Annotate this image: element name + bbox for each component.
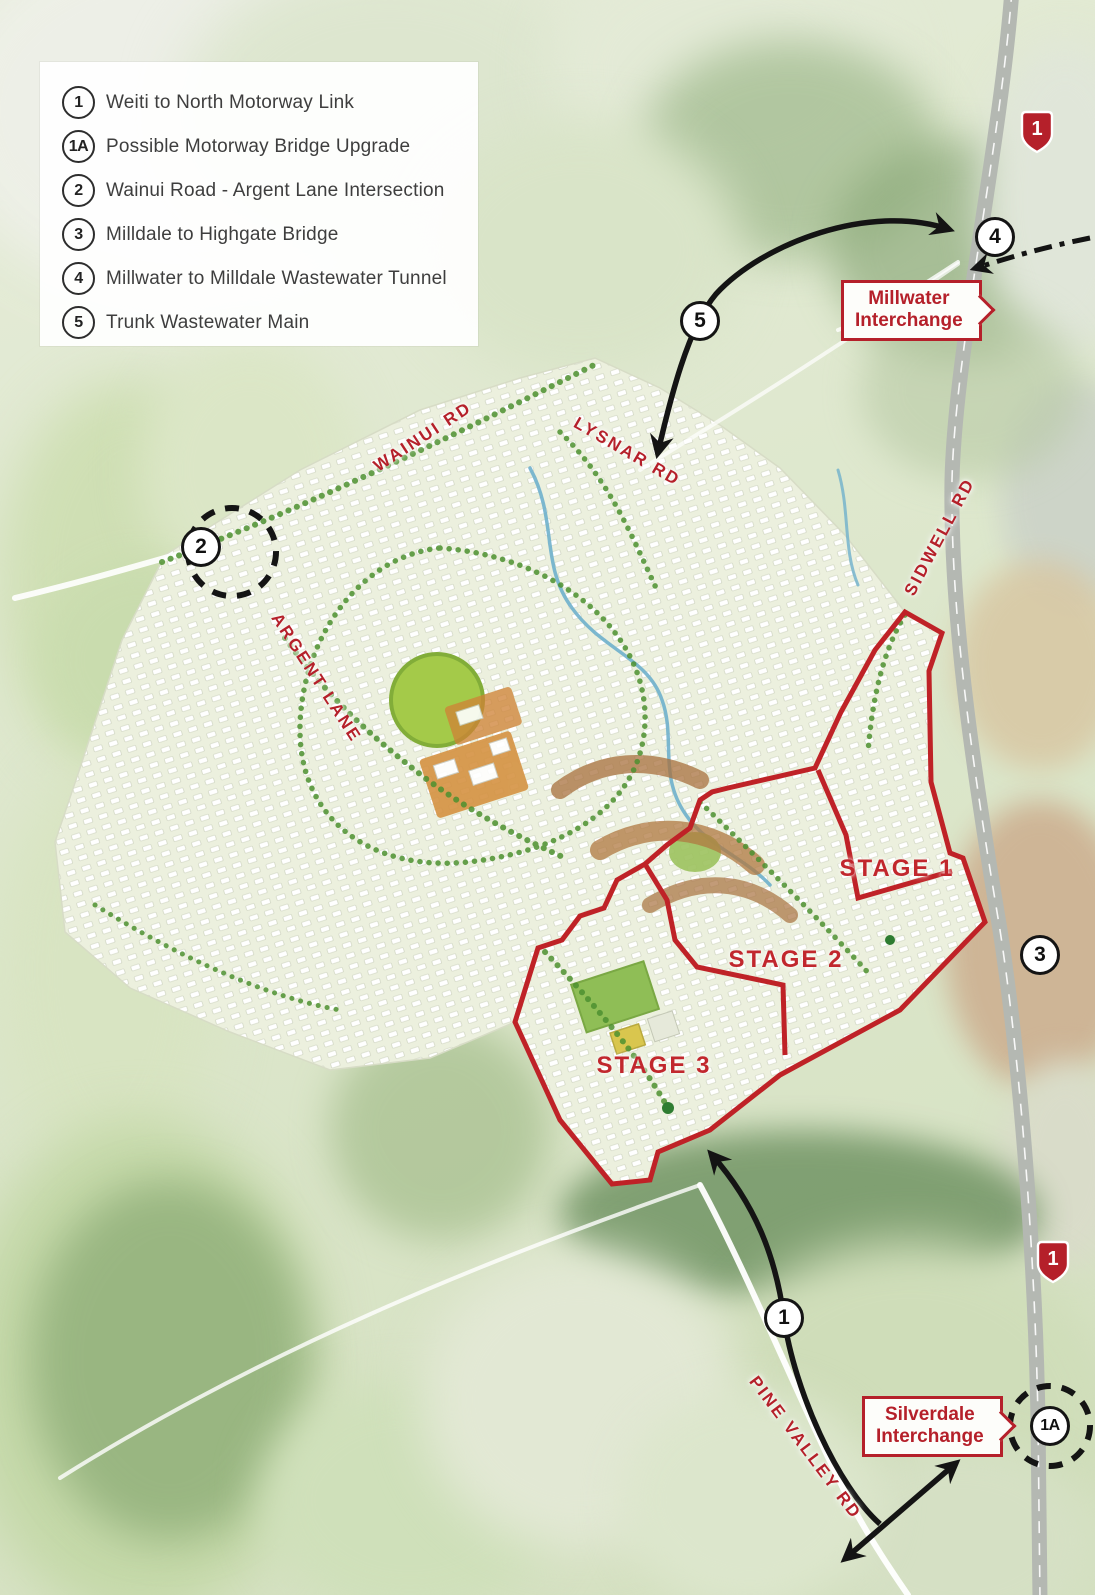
- marker-5: 5: [680, 301, 720, 341]
- legend-item-label: Possible Motorway Bridge Upgrade: [106, 136, 410, 158]
- arrow-weiti-link: [712, 1155, 880, 1524]
- marker-1a: 1A: [1030, 1406, 1070, 1446]
- callout-millwater: Millwater Interchange: [841, 280, 982, 341]
- legend-item-circle: 3: [62, 218, 95, 251]
- legend-item: 4 Millwater to Milldale Wastewater Tunne…: [62, 262, 460, 295]
- marker-3-number: 3: [1034, 943, 1046, 967]
- legend: 1 Weiti to North Motorway Link 1A Possib…: [40, 62, 478, 346]
- stage1-label: STAGE 1: [840, 855, 955, 883]
- legend-item-circle: 1A: [62, 130, 95, 163]
- legend-item-label: Milldale to Highgate Bridge: [106, 224, 338, 246]
- stage2-label: STAGE 2: [729, 946, 844, 974]
- shield-number: 1: [1047, 1248, 1058, 1270]
- legend-item-circle: 5: [62, 306, 95, 339]
- marker-3: 3: [1020, 935, 1060, 975]
- highway-shield-south: 1: [1036, 1240, 1070, 1284]
- legend-list: 1 Weiti to North Motorway Link 1A Possib…: [40, 62, 478, 339]
- marker-1-number: 1: [778, 1306, 790, 1330]
- legend-item-label: Millwater to Milldale Wastewater Tunnel: [106, 268, 447, 290]
- legend-item-circle: 2: [62, 174, 95, 207]
- highway-shield-north: 1: [1020, 110, 1054, 154]
- map-canvas: 2 5 4 3 1 1A WAINUI RD LYSNAR RD SIDWELL…: [0, 0, 1095, 1595]
- legend-item-label: Wainui Road - Argent Lane Intersection: [106, 180, 445, 202]
- callout-silverdale-line1: Silverdale: [876, 1404, 984, 1426]
- legend-item: 2 Wainui Road - Argent Lane Intersection: [62, 174, 460, 207]
- stage3-label: STAGE 3: [597, 1052, 712, 1080]
- legend-item-circle: 4: [62, 262, 95, 295]
- marker-4: 4: [975, 217, 1015, 257]
- marker-2-number: 2: [195, 535, 207, 559]
- legend-item-label: Weiti to North Motorway Link: [106, 92, 354, 114]
- callout-millwater-line1: Millwater: [855, 288, 963, 310]
- legend-item: 5 Trunk Wastewater Main: [62, 306, 460, 339]
- legend-item-circle: 1: [62, 86, 95, 119]
- marker-2: 2: [181, 527, 221, 567]
- legend-item: 3 Milldale to Highgate Bridge: [62, 218, 460, 251]
- shield-number: 1: [1031, 118, 1042, 140]
- legend-item: 1A Possible Motorway Bridge Upgrade: [62, 130, 460, 163]
- shield-icon: 1: [1036, 1240, 1070, 1284]
- marker-1: 1: [764, 1298, 804, 1338]
- legend-item: 1 Weiti to North Motorway Link: [62, 86, 460, 119]
- shield-icon: 1: [1020, 110, 1054, 154]
- callout-silverdale-line2: Interchange: [876, 1426, 984, 1448]
- callout-silverdale: Silverdale Interchange: [862, 1396, 1003, 1457]
- marker-5-number: 5: [694, 309, 706, 333]
- callout-millwater-line2: Interchange: [855, 310, 963, 332]
- marker-1a-number: 1A: [1040, 1417, 1059, 1435]
- marker-4-number: 4: [989, 225, 1001, 249]
- legend-item-label: Trunk Wastewater Main: [106, 312, 309, 334]
